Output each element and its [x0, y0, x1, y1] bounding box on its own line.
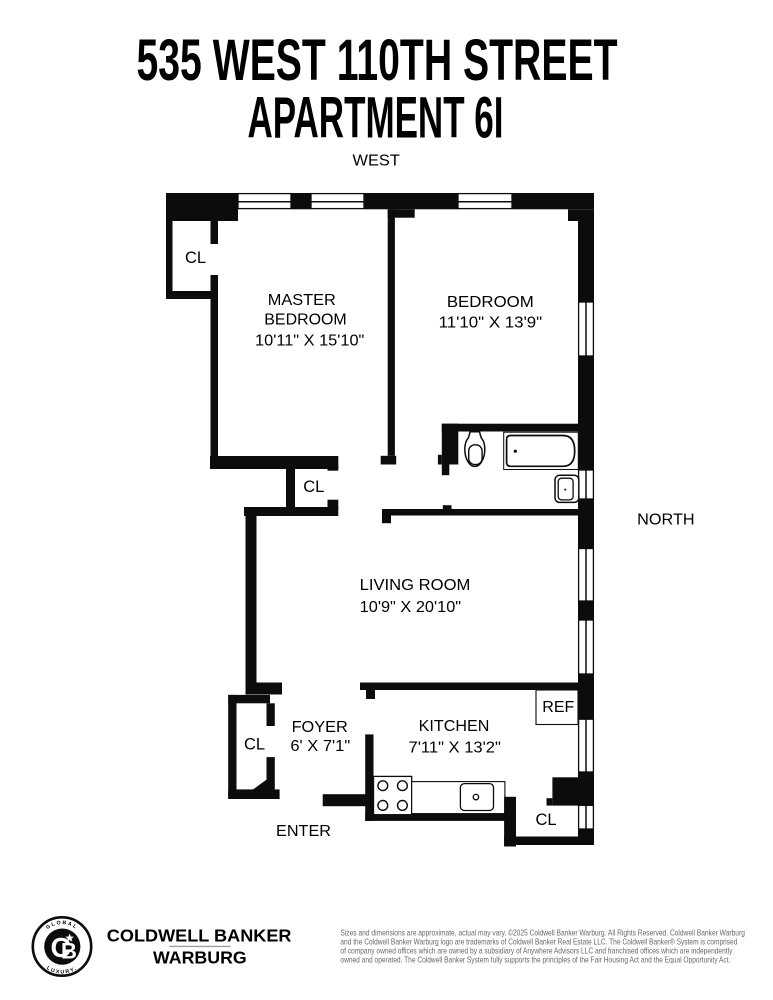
svg-text:WARBURG: WARBURG — [153, 948, 247, 968]
svg-text:CL: CL — [303, 478, 324, 496]
svg-text:BEDROOM: BEDROOM — [264, 312, 346, 329]
svg-text:6' X 7'1": 6' X 7'1" — [290, 738, 350, 755]
svg-text:NORTH: NORTH — [637, 512, 694, 529]
svg-text:10'9" X 20'10": 10'9" X 20'10" — [360, 599, 461, 616]
svg-text:CL: CL — [244, 736, 265, 754]
svg-text:owned and operated. The Coldwe: owned and operated. The Coldwell Banker … — [340, 955, 730, 965]
svg-text:FOYER: FOYER — [292, 719, 348, 736]
svg-text:REF: REF — [542, 699, 574, 716]
svg-text:BEDROOM: BEDROOM — [447, 294, 534, 311]
svg-text:535 WEST 110TH STREET: 535 WEST 110TH STREET — [137, 28, 618, 93]
svg-text:CL: CL — [185, 249, 206, 267]
svg-text:ENTER: ENTER — [276, 823, 331, 840]
svg-text:B: B — [61, 939, 77, 964]
svg-text:11'10" X 13'9": 11'10" X 13'9" — [439, 314, 543, 331]
svg-text:MASTER: MASTER — [268, 292, 336, 309]
svg-text:KITCHEN: KITCHEN — [419, 718, 490, 735]
svg-text:LIVING ROOM: LIVING ROOM — [360, 577, 471, 594]
svg-text:WEST: WEST — [353, 153, 401, 170]
svg-text:10'11" X 15'10": 10'11" X 15'10" — [255, 333, 364, 350]
svg-text:COLDWELL BANKER: COLDWELL BANKER — [107, 926, 292, 946]
svg-text:7'11" X 13'2": 7'11" X 13'2" — [409, 740, 501, 757]
svg-text:CL: CL — [535, 811, 556, 829]
svg-text:APARTMENT 6I: APARTMENT 6I — [248, 85, 504, 150]
